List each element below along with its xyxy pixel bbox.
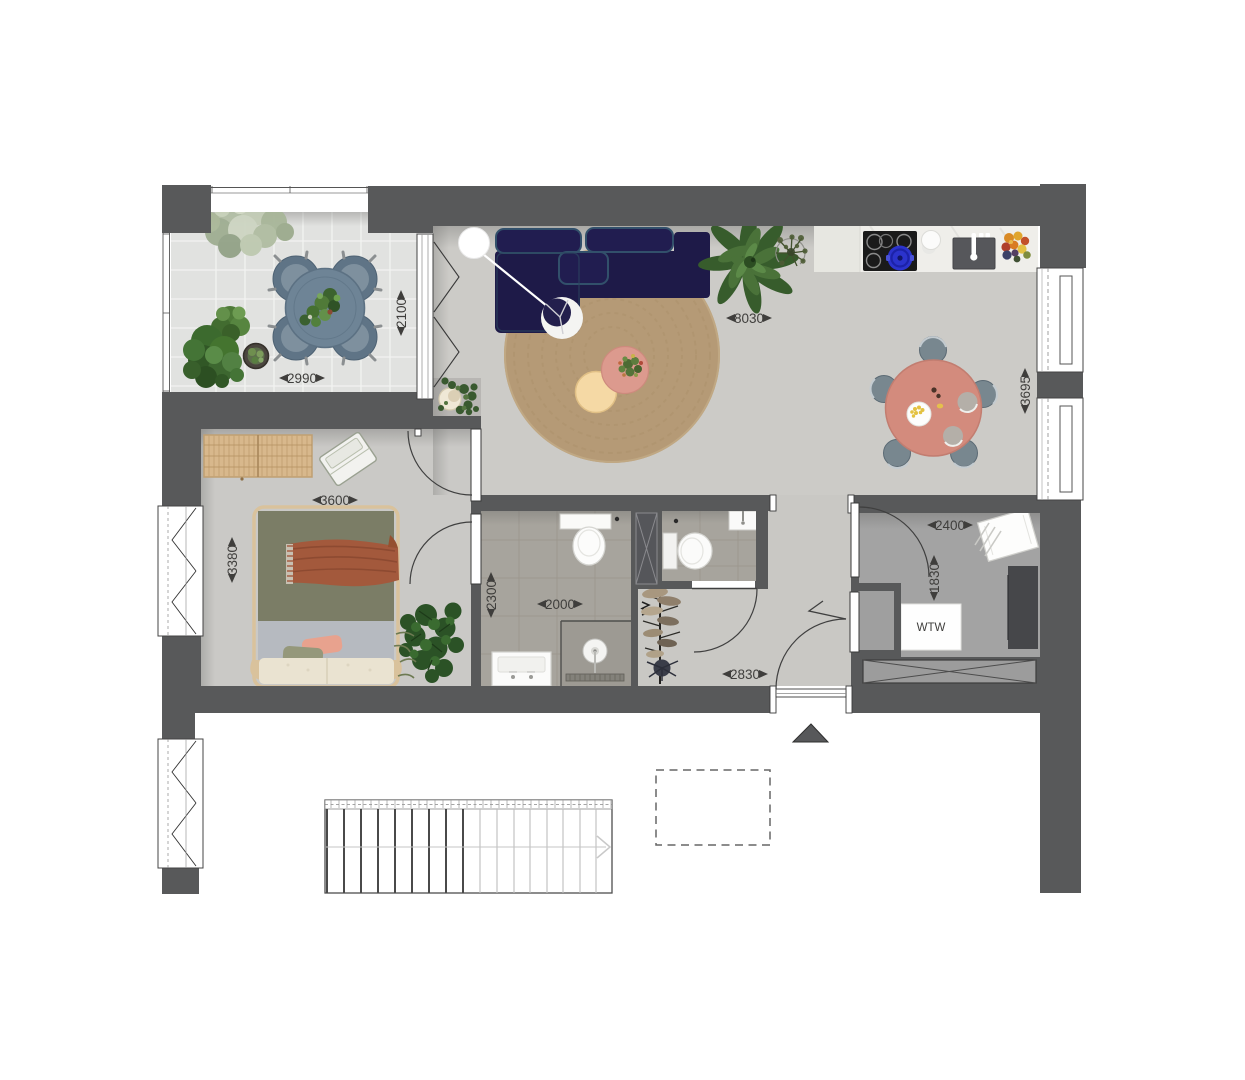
- svg-text:2400: 2400: [935, 518, 965, 533]
- svg-text:2000: 2000: [545, 597, 575, 612]
- svg-text:3600: 3600: [320, 493, 350, 508]
- svg-text:8030: 8030: [734, 311, 764, 326]
- svg-text:3695: 3695: [1018, 376, 1033, 406]
- svg-text:3380: 3380: [225, 545, 240, 575]
- svg-text:2990: 2990: [287, 371, 317, 386]
- svg-text:WTW: WTW: [917, 622, 946, 634]
- svg-text:2300: 2300: [484, 580, 499, 610]
- svg-text:2100: 2100: [394, 298, 409, 328]
- svg-text:2830: 2830: [730, 667, 760, 682]
- svg-text:1830: 1830: [927, 563, 942, 593]
